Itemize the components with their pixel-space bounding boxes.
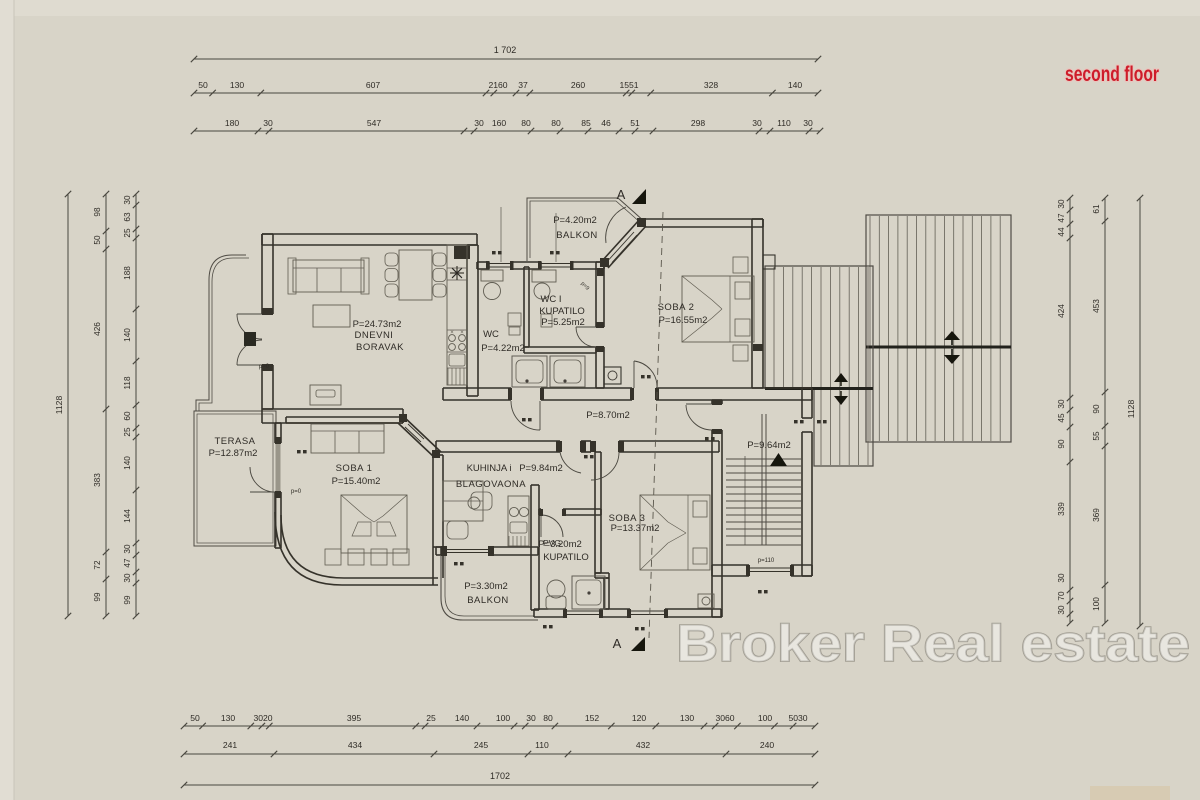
svg-text:1128: 1128 [1126,400,1136,419]
svg-text:61: 61 [1092,204,1101,214]
svg-text:188: 188 [123,266,132,280]
svg-text:KUHINJA i: KUHINJA i [467,463,512,474]
svg-text:3020: 3020 [253,713,272,723]
svg-text:P=13.37m2: P=13.37m2 [611,523,660,534]
svg-text:80: 80 [551,118,561,128]
svg-text:P=5.25m2: P=5.25m2 [541,317,585,328]
svg-text:424: 424 [1057,304,1066,318]
svg-text:339: 339 [1057,502,1066,516]
svg-text:1128: 1128 [54,396,64,415]
svg-text:47: 47 [1057,213,1066,223]
svg-text:5030: 5030 [788,713,807,723]
svg-text:46: 46 [601,118,611,128]
svg-text:A: A [617,187,626,202]
svg-text:47: 47 [123,558,132,568]
svg-text:BLAGOVAONA: BLAGOVAONA [456,479,526,490]
svg-text:369: 369 [1092,508,1101,522]
svg-text:51: 51 [630,118,640,128]
svg-text:432: 432 [636,740,651,750]
svg-text:×: × [460,330,464,336]
svg-text:P=9.84m2: P=9.84m2 [519,463,563,474]
svg-text:72: 72 [93,560,102,570]
svg-text:100: 100 [496,713,511,723]
svg-text:25: 25 [426,713,436,723]
svg-text:140: 140 [788,80,803,90]
svg-text:3060: 3060 [715,713,734,723]
svg-text:99: 99 [123,595,132,605]
svg-text:A: A [613,636,622,651]
svg-text:395: 395 [347,713,362,723]
svg-text:85: 85 [581,118,591,128]
svg-text:63: 63 [123,212,132,222]
svg-text:453: 453 [1092,299,1101,313]
svg-text:298: 298 [691,118,706,128]
svg-text:BORAVAK: BORAVAK [356,342,404,353]
svg-text:328: 328 [704,80,719,90]
svg-text:KUPATILO: KUPATILO [539,306,585,317]
svg-text:WC I: WC I [540,294,561,305]
svg-text:99: 99 [93,592,102,602]
svg-text:p=110: p=110 [758,558,775,564]
svg-text:30: 30 [526,713,536,723]
svg-text:547: 547 [367,118,382,128]
svg-text:1702: 1702 [490,771,510,781]
svg-text:SOBA 2: SOBA 2 [658,302,695,313]
svg-text:SOBA 1: SOBA 1 [336,463,373,474]
svg-text:P=8.70m2: P=8.70m2 [586,410,630,421]
svg-text:P=16.55m2: P=16.55m2 [659,315,708,326]
svg-text:50: 50 [93,235,102,245]
svg-text:44: 44 [1057,227,1066,237]
svg-text:30: 30 [1057,399,1066,409]
svg-text:PVG: PVG [543,538,561,548]
svg-text:30: 30 [752,118,762,128]
svg-text:140: 140 [123,456,132,470]
svg-text:WC: WC [483,329,499,340]
svg-text:140: 140 [123,328,132,342]
svg-text:30: 30 [1057,573,1066,583]
svg-text:30: 30 [474,118,484,128]
svg-text:383: 383 [93,473,102,487]
svg-text:98: 98 [93,207,102,217]
svg-text:245: 245 [474,740,489,750]
svg-text:144: 144 [123,509,132,523]
svg-text:2160: 2160 [488,80,507,90]
svg-text:100: 100 [758,713,773,723]
svg-text:70: 70 [1057,591,1066,601]
svg-text:30: 30 [123,573,132,583]
svg-text:P=4.20m2: P=4.20m2 [553,215,597,226]
svg-text:25: 25 [123,228,132,238]
svg-text:P=15.40m2: P=15.40m2 [332,476,381,487]
svg-text:DNEVNI: DNEVNI [355,330,394,341]
svg-text:KUPATILO: KUPATILO [543,552,589,563]
svg-text:30: 30 [123,195,132,205]
svg-text:55: 55 [1092,431,1101,441]
svg-text:P=3.30m2: P=3.30m2 [464,581,508,592]
svg-text:50: 50 [190,713,200,723]
svg-text:30: 30 [123,544,132,554]
svg-text:P=4.22m2: P=4.22m2 [481,343,525,354]
svg-text:30: 30 [1057,199,1066,209]
svg-text:Broker Real estate: Broker Real estate [676,615,1190,673]
svg-text:BALKON: BALKON [467,595,509,606]
svg-text:80: 80 [521,118,531,128]
svg-text:P=9.64m2: P=9.64m2 [747,440,791,451]
svg-text:426: 426 [93,322,102,336]
svg-text:p=0: p=0 [291,489,302,495]
svg-text:90: 90 [1057,439,1066,449]
svg-text:30: 30 [803,118,813,128]
svg-text:118: 118 [123,376,132,389]
svg-text:607: 607 [366,80,381,90]
svg-text:110: 110 [777,118,791,128]
svg-text:p=0: p=0 [259,364,270,370]
svg-text:30: 30 [263,118,273,128]
svg-text:45: 45 [1057,413,1066,423]
svg-text:1 702: 1 702 [494,45,517,55]
svg-text:130: 130 [680,713,695,723]
svg-text:180: 180 [225,118,240,128]
svg-text:80: 80 [543,713,553,723]
svg-text:60: 60 [123,411,132,421]
svg-text:BALKON: BALKON [556,230,598,241]
svg-text:260: 260 [571,80,586,90]
svg-text:100: 100 [1092,597,1101,611]
svg-text:90: 90 [1092,404,1101,414]
svg-text:1551: 1551 [619,80,638,90]
svg-text:240: 240 [760,740,775,750]
svg-text:241: 241 [223,740,238,750]
svg-text:37: 37 [518,80,528,90]
svg-text:110: 110 [535,740,549,750]
svg-text:120: 120 [632,713,647,723]
svg-text:P=12.87m2: P=12.87m2 [209,448,258,459]
svg-text:×: × [450,330,454,336]
svg-text:160: 160 [492,118,507,128]
svg-text:140: 140 [455,713,470,723]
svg-text:TERASA: TERASA [214,436,255,447]
svg-text:P=24.73m2: P=24.73m2 [353,319,402,330]
svg-text:130: 130 [230,80,245,90]
svg-text:434: 434 [348,740,363,750]
svg-text:25: 25 [123,427,132,437]
svg-text:30: 30 [1057,605,1066,615]
svg-text:152: 152 [585,713,600,723]
svg-text:50: 50 [198,80,208,90]
svg-text:second floor: second floor [1065,63,1159,86]
svg-text:130: 130 [221,713,236,723]
